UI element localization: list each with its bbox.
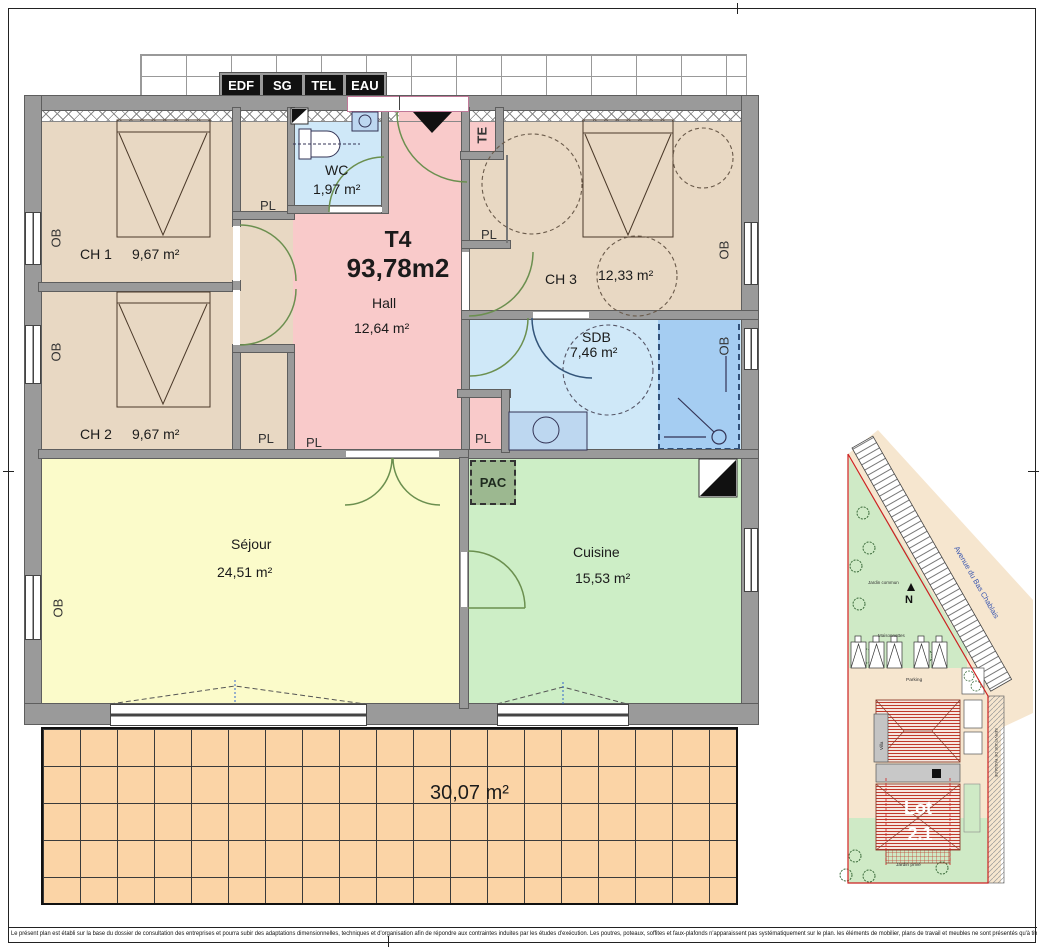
room-label-hall: Hall — [372, 295, 396, 311]
room-label-sdb: SDB — [582, 329, 611, 345]
apartment-type: T4 — [333, 226, 463, 253]
north-label: N — [905, 594, 913, 606]
room-area-ch2: 9,67 m² — [132, 426, 179, 442]
room-area-sejour: 24,51 m² — [217, 564, 272, 580]
room-area-wc: 1,97 m² — [313, 181, 360, 197]
connector-shaft — [932, 769, 941, 778]
apartment-title: T4 93,78m2 — [333, 226, 463, 284]
room-label-cuisine: Cuisine — [573, 544, 620, 560]
jardin-commun-label: Jardin commun — [868, 580, 899, 585]
window-label-ob: OB — [49, 338, 64, 362]
closet-label-pl: PL — [306, 435, 322, 450]
room-label-ch1: CH 1 — [80, 246, 112, 262]
floor-plan-page: EDF SG TEL EAU PAC — [0, 0, 1042, 949]
closet-label-pl: PL — [481, 227, 497, 242]
turning-circles — [482, 128, 733, 316]
toilet-icon — [293, 129, 360, 159]
room-label-ch2: CH 2 — [80, 426, 112, 442]
room-area-hall: 12,64 m² — [354, 320, 409, 336]
shower-fixture-icon — [664, 356, 726, 444]
villa-label: Villa — [879, 741, 884, 750]
door-swings — [240, 112, 533, 608]
lot-number: 2.1 — [907, 824, 932, 844]
room-label-wc: WC — [325, 162, 348, 178]
apartment-total-area: 93,78m2 — [333, 253, 463, 284]
duct-icon — [291, 108, 308, 124]
site-plan: N Villa — [828, 428, 1042, 896]
closet-label-pl: PL — [258, 431, 274, 446]
te-label: TE — [475, 120, 490, 144]
bed-ch1 — [117, 120, 210, 237]
servitude-strip — [988, 696, 1004, 883]
room-area-ch1: 9,67 m² — [132, 246, 179, 262]
bay-opening-marks — [110, 686, 627, 704]
terrace-area: 30,07 m² — [430, 782, 509, 805]
room-area-ch3: 12,33 m² — [598, 267, 653, 283]
maisonnettes-area — [849, 640, 967, 668]
servitude-label: SERVITUDE DE PASSAGE — [994, 728, 999, 778]
footer-disclaimer: Le présent plan est établi sur la base d… — [8, 927, 1037, 944]
entrance-arrow-icon — [413, 112, 452, 133]
room-area-cuisine: 15,53 m² — [575, 570, 630, 586]
window-label-ob: OB — [49, 224, 64, 248]
washbasin-icon — [509, 412, 587, 450]
maisonnettes-label: Maisonnettes — [878, 633, 906, 638]
local-velos — [962, 668, 984, 694]
disclaimer-text: Le présent plan est établi sur la base d… — [11, 930, 1037, 937]
bay-axis-marks — [235, 680, 563, 704]
window-label-ob: OB — [717, 332, 732, 356]
window-label-ob: OB — [51, 594, 66, 618]
jardin-prive-label: Jardin privé — [896, 862, 921, 868]
parking-label: Parking — [906, 677, 923, 683]
window-label-ob: OB — [717, 236, 732, 260]
closet-label-pl: PL — [260, 198, 276, 213]
bed-ch2 — [117, 292, 210, 407]
lot-name: Lot — [904, 798, 932, 818]
room-area-sdb: 7,46 m² — [570, 344, 617, 360]
duct-icon — [699, 459, 737, 497]
wc-sink-icon — [352, 112, 378, 131]
closet-label-pl: PL — [475, 431, 491, 446]
building-connector — [876, 764, 960, 782]
bed-ch3 — [583, 120, 673, 237]
room-label-ch3: CH 3 — [545, 271, 577, 287]
room-label-sejour: Séjour — [231, 536, 271, 552]
